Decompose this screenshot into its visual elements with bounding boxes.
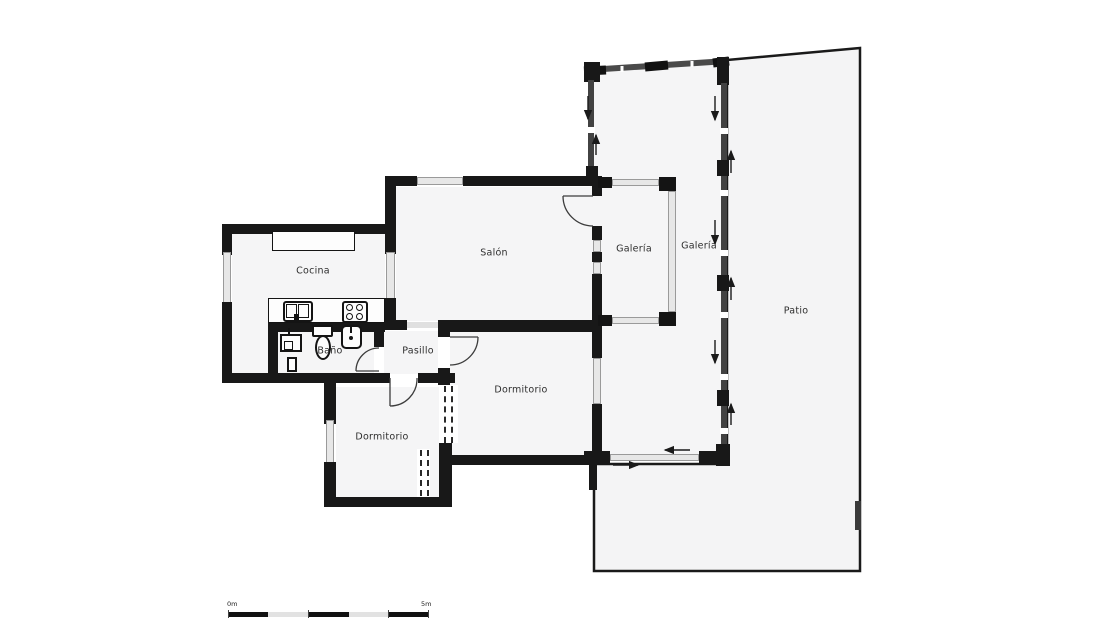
wardrobe-dashed-line [451, 386, 453, 443]
wall [438, 320, 602, 332]
washbasin-drain-icon [349, 336, 353, 340]
room-label-bano: Baño [317, 346, 342, 357]
scale-tick [308, 610, 309, 618]
washbasin-tap-icon [350, 327, 352, 333]
window-break [720, 428, 728, 434]
floor-plan: Cocina Salón Galería Galería Patio Baño … [0, 0, 1110, 626]
scale-segment [228, 612, 268, 617]
wall [699, 451, 728, 465]
scale-segment [268, 612, 309, 617]
scale-segment [349, 612, 389, 617]
galeria-box-glass [612, 179, 659, 186]
galeria-box-corner [598, 177, 612, 188]
scale-segment [309, 612, 349, 617]
wall [438, 368, 450, 385]
galeria-box-glass [668, 191, 676, 312]
kitchen-faucet-icon [294, 314, 299, 322]
room-label-cocina: Cocina [296, 266, 330, 277]
wall [463, 176, 602, 186]
patio-gate [855, 501, 861, 530]
window-break [720, 374, 728, 380]
stove-burner-icon [346, 304, 353, 311]
window-break [720, 190, 728, 196]
stove-burner-icon [356, 313, 363, 320]
kitchen-top-counter [272, 231, 355, 251]
cocina-floor-ext [232, 322, 268, 374]
galeria-floor [590, 62, 725, 456]
room-label-patio: Patio [784, 306, 809, 317]
window [326, 420, 334, 466]
window [223, 252, 231, 304]
wall [584, 62, 600, 82]
room-label-dormitorio-grande: Dormitorio [494, 385, 547, 396]
window-break [587, 127, 595, 133]
wall [324, 378, 336, 424]
wall [592, 252, 602, 262]
wardrobe-dashed-line [444, 386, 446, 443]
scale-bar [228, 612, 429, 617]
scale-tick [228, 610, 229, 618]
galeria-box-corner [659, 177, 676, 191]
wall [584, 451, 610, 465]
room-label-salon: Salón [480, 248, 508, 259]
stove-burner-icon [356, 304, 363, 311]
opening-threshold [407, 322, 438, 328]
scale-tick [388, 610, 389, 618]
bath-basin-tap-icon [288, 328, 290, 335]
wall [717, 160, 729, 176]
wall [592, 226, 602, 240]
window [593, 240, 601, 252]
wall [222, 373, 390, 383]
window [593, 358, 601, 404]
wall [438, 330, 450, 337]
bath-column [287, 357, 297, 372]
window-break [720, 128, 728, 134]
galeria-box-corner [598, 315, 612, 326]
stove-burner-icon [346, 313, 353, 320]
galeria-box-corner [659, 312, 676, 326]
wall [385, 320, 407, 330]
kitchen-sink-basin [298, 304, 309, 318]
wall [222, 302, 232, 383]
window [417, 177, 463, 185]
scale-label-start: 0m [227, 600, 237, 608]
wall [589, 455, 597, 490]
window [593, 262, 601, 274]
wall [374, 322, 384, 347]
room-label-pasillo: Pasillo [402, 346, 434, 357]
wall [385, 176, 417, 186]
wall [717, 57, 729, 85]
galeria-top-wall-seg [645, 65, 668, 67]
wall [586, 166, 598, 178]
wardrobe-dashed-line [420, 450, 422, 496]
wall [385, 176, 396, 254]
window-break [720, 312, 728, 318]
bath-basin-inner [284, 341, 293, 350]
scale-label-end: 5m [421, 600, 431, 608]
wall [717, 275, 729, 291]
wall [222, 224, 232, 255]
room-label-galeria-outer: Galería [681, 241, 717, 252]
room-label-galeria-inner: Galería [616, 244, 652, 255]
wardrobe-dashed-line [427, 450, 429, 496]
wall [268, 322, 278, 383]
galeria-box-glass [612, 317, 659, 324]
wall [324, 497, 452, 507]
scale-tick [428, 610, 429, 618]
wall [445, 455, 602, 465]
window [610, 454, 699, 461]
wall [717, 390, 729, 406]
window [386, 252, 395, 300]
room-label-dormitorio-pequeno: Dormitorio [355, 432, 408, 443]
window-break [720, 250, 728, 256]
scale-segment [389, 612, 429, 617]
